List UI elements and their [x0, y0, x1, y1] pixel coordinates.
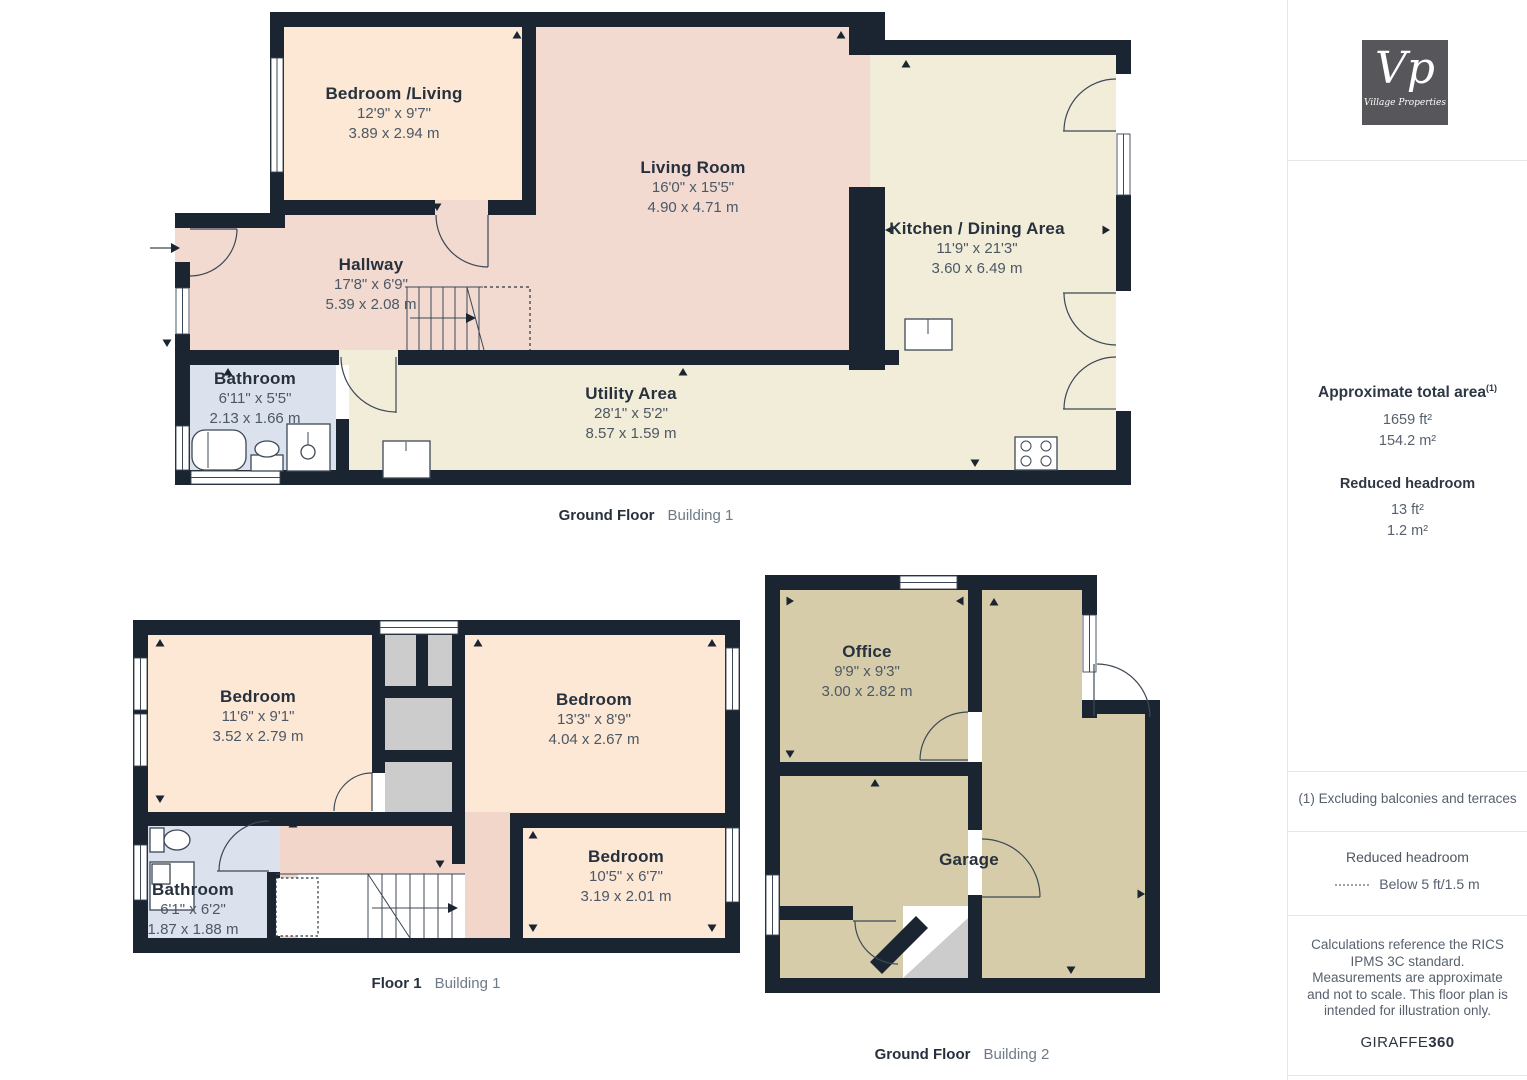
bathtub-icon: [192, 430, 246, 470]
room-label-office: Office 9'9" x 9'3" 3.00 x 2.82 m: [822, 642, 913, 701]
footnote-text: (1) Excluding balconies and terraces: [1288, 791, 1527, 806]
room-label-hallway: Hallway 17'8" x 6'9" 5.39 x 2.08 m: [326, 255, 417, 314]
room-label-garage: Garage: [939, 850, 999, 870]
legend-row: Below 5 ft/1.5 m: [1288, 876, 1527, 892]
room-label-kitchen-dining: Kitchen / Dining Area 11'9" x 21'3" 3.60…: [889, 219, 1064, 278]
reduced-headroom-title: Reduced headroom: [1288, 476, 1527, 492]
room-label-bathroom-gf: Bathroom 6'11" x 5'5" 2.13 x 1.66 m: [210, 369, 301, 428]
stairs: [276, 874, 465, 938]
total-area-title: Approximate total area(1): [1288, 383, 1527, 402]
brand-section: Vp Village Properties: [1288, 0, 1527, 160]
room-label-bedroom-1: Bedroom 11'6" x 9'1" 3.52 x 2.79 m: [213, 687, 304, 746]
dotted-line-icon: [1335, 884, 1369, 886]
footnote-section: (1) Excluding balconies and terraces: [1288, 771, 1527, 831]
legend-section: Reduced headroom Below 5 ft/1.5 m: [1288, 831, 1527, 915]
info-sidebar: Vp Village Properties Approximate total …: [1287, 0, 1527, 1080]
brand-logo-name: Village Properties: [1362, 98, 1448, 108]
floorplan-page: Bedroom /Living 12'9" x 9'7" 3.89 x 2.94…: [0, 0, 1527, 1080]
sidebar-end-divider: [1288, 1075, 1527, 1080]
legend-title: Reduced headroom: [1288, 849, 1527, 865]
giraffe360-brand: GIRAFFE360: [1288, 1034, 1527, 1051]
toilet-icon: [150, 828, 164, 852]
room-label-living-room: Living Room 16'0" x 15'5" 4.90 x 4.71 m: [640, 158, 745, 217]
room-label-bedroom-living: Bedroom /Living 12'9" x 9'7" 3.89 x 2.94…: [325, 84, 462, 143]
reduced-headroom-m: 1.2 m²: [1288, 521, 1527, 542]
reduced-headroom-ft: 13 ft²: [1288, 500, 1527, 521]
brand-logo: Vp Village Properties: [1362, 40, 1448, 125]
disclaimer-section: Calculations reference the RICS IPMS 3C …: [1288, 915, 1527, 1075]
reduced-headroom-zone: [276, 878, 318, 936]
brand-logo-monogram: Vp: [1362, 40, 1448, 98]
room-label-bedroom-2: Bedroom 13'3" x 8'9" 4.04 x 2.67 m: [549, 690, 640, 749]
room-label-utility-area: Utility Area 28'1" x 5'2" 8.57 x 1.59 m: [585, 384, 677, 443]
total-area-ft: 1659 ft²: [1288, 410, 1527, 431]
room-label-bedroom-3: Bedroom 10'5" x 6'7" 3.19 x 2.01 m: [581, 847, 672, 906]
total-area-m: 154.2 m²: [1288, 431, 1527, 452]
caption-floor-1-building-1: Floor 1Building 1: [372, 975, 501, 992]
stove-icon: [1015, 437, 1057, 470]
caption-ground-floor-building-2: Ground FloorBuilding 2: [875, 1046, 1050, 1063]
area-summary-section: Approximate total area(1) 1659 ft² 154.2…: [1288, 160, 1527, 771]
caption-ground-floor-building-1: Ground FloorBuilding 1: [559, 507, 734, 524]
disclaimer-text: Calculations reference the RICS IPMS 3C …: [1307, 937, 1509, 1020]
legend-value: Below 5 ft/1.5 m: [1379, 876, 1479, 892]
plan-ground-floor-building-2: [765, 575, 1160, 993]
room-label-bathroom-f1: Bathroom 6'1" x 6'2" 1.87 x 1.88 m: [148, 880, 239, 939]
